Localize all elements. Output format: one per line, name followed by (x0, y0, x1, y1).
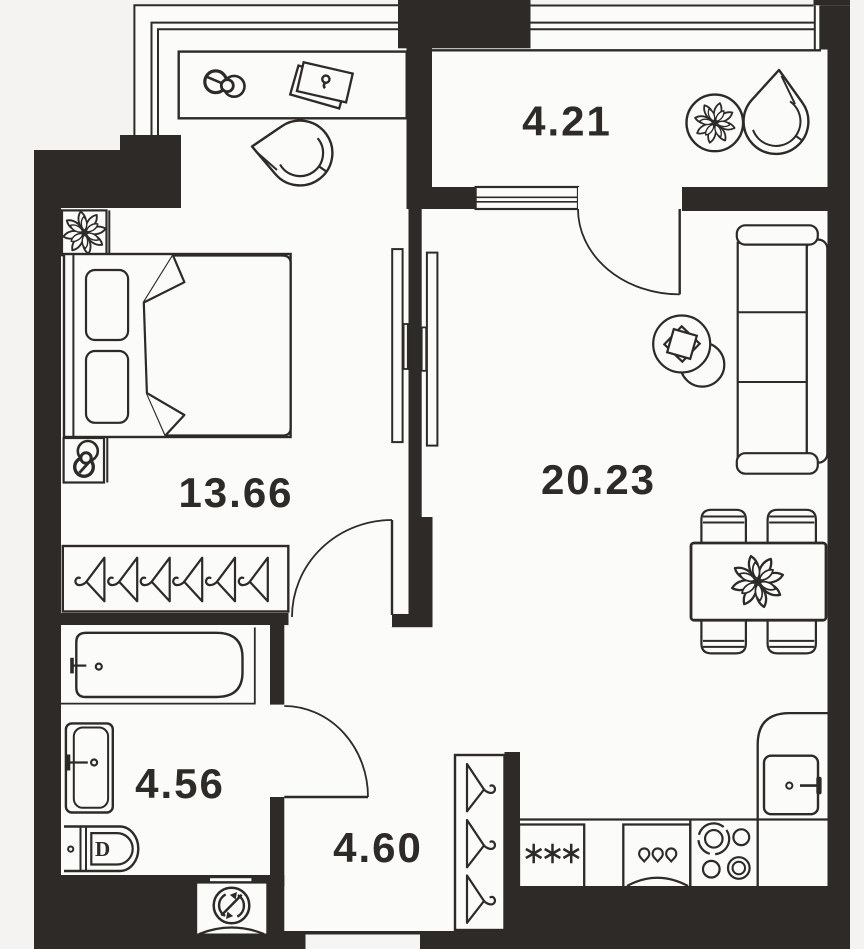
svg-text:4.56: 4.56 (135, 760, 225, 807)
svg-text:4.60: 4.60 (333, 824, 423, 871)
svg-text:13.66: 13.66 (178, 469, 293, 516)
svg-text:D: D (95, 837, 110, 861)
svg-text:20.23: 20.23 (541, 456, 656, 503)
svg-text:4.21: 4.21 (522, 98, 612, 145)
